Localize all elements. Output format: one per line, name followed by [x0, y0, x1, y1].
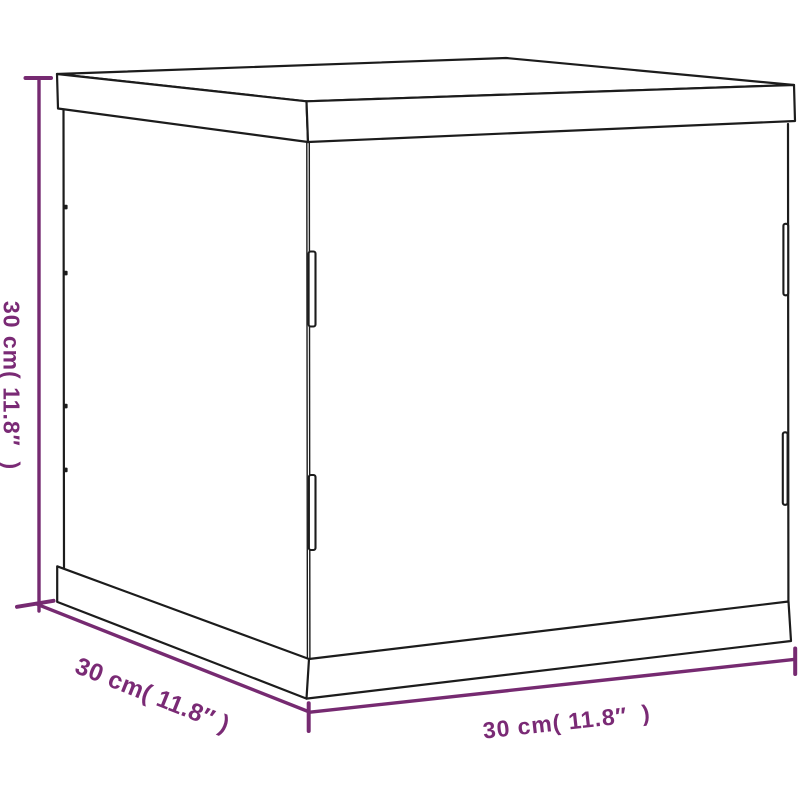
svg-text:30 cm( 11.8″ ): 30 cm( 11.8″ )	[0, 301, 24, 470]
